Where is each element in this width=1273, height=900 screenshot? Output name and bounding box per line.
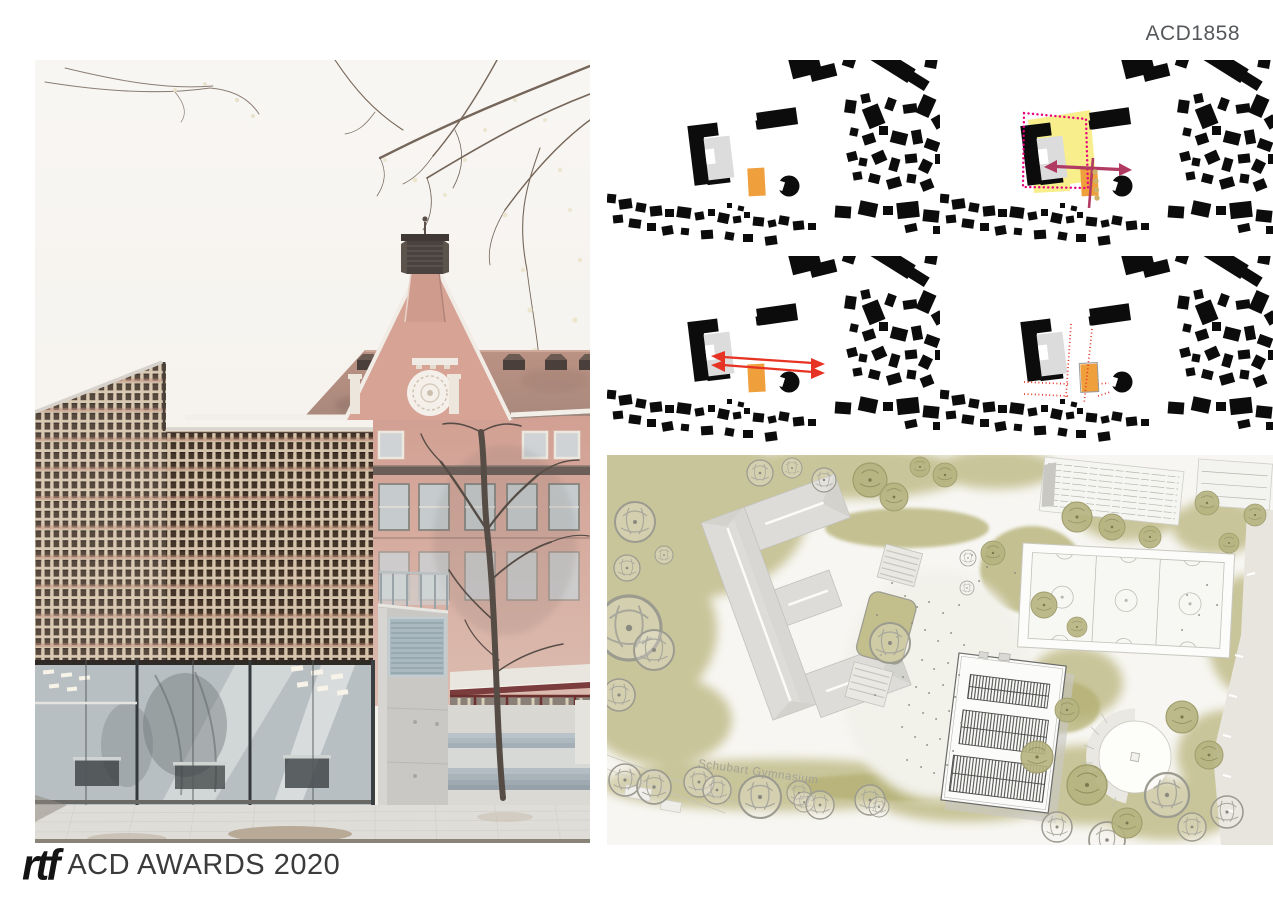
site-plan-drawing: [607, 455, 1273, 845]
concept-diagram-existing: [607, 60, 940, 258]
concrete-tower: [378, 605, 448, 805]
site-plan: Schubart Gymnasium: [607, 455, 1273, 845]
board-code: ACD1858: [1145, 22, 1240, 46]
awards-board-page: ACD1858: [0, 0, 1273, 900]
concept-diagrams: [607, 60, 1273, 452]
roof-balustrade: [379, 572, 449, 610]
statue-left: [350, 378, 360, 414]
louver-grille: [389, 618, 445, 676]
footer-branding: rtf ACD AWARDS 2020: [22, 844, 340, 886]
building-photograph: [35, 60, 590, 843]
glass-ground-floor: [35, 660, 375, 805]
new-building: [940, 648, 1076, 823]
concept-diagram-alignments: [940, 256, 1273, 454]
statue-right: [449, 378, 459, 414]
extension-building: [35, 362, 375, 805]
concept-diagram-view-axes: [607, 256, 940, 454]
awards-title: ACD AWARDS 2020: [67, 849, 340, 882]
concept-diagram-site-area: [940, 60, 1273, 258]
rtf-logo: rtf: [22, 843, 57, 887]
